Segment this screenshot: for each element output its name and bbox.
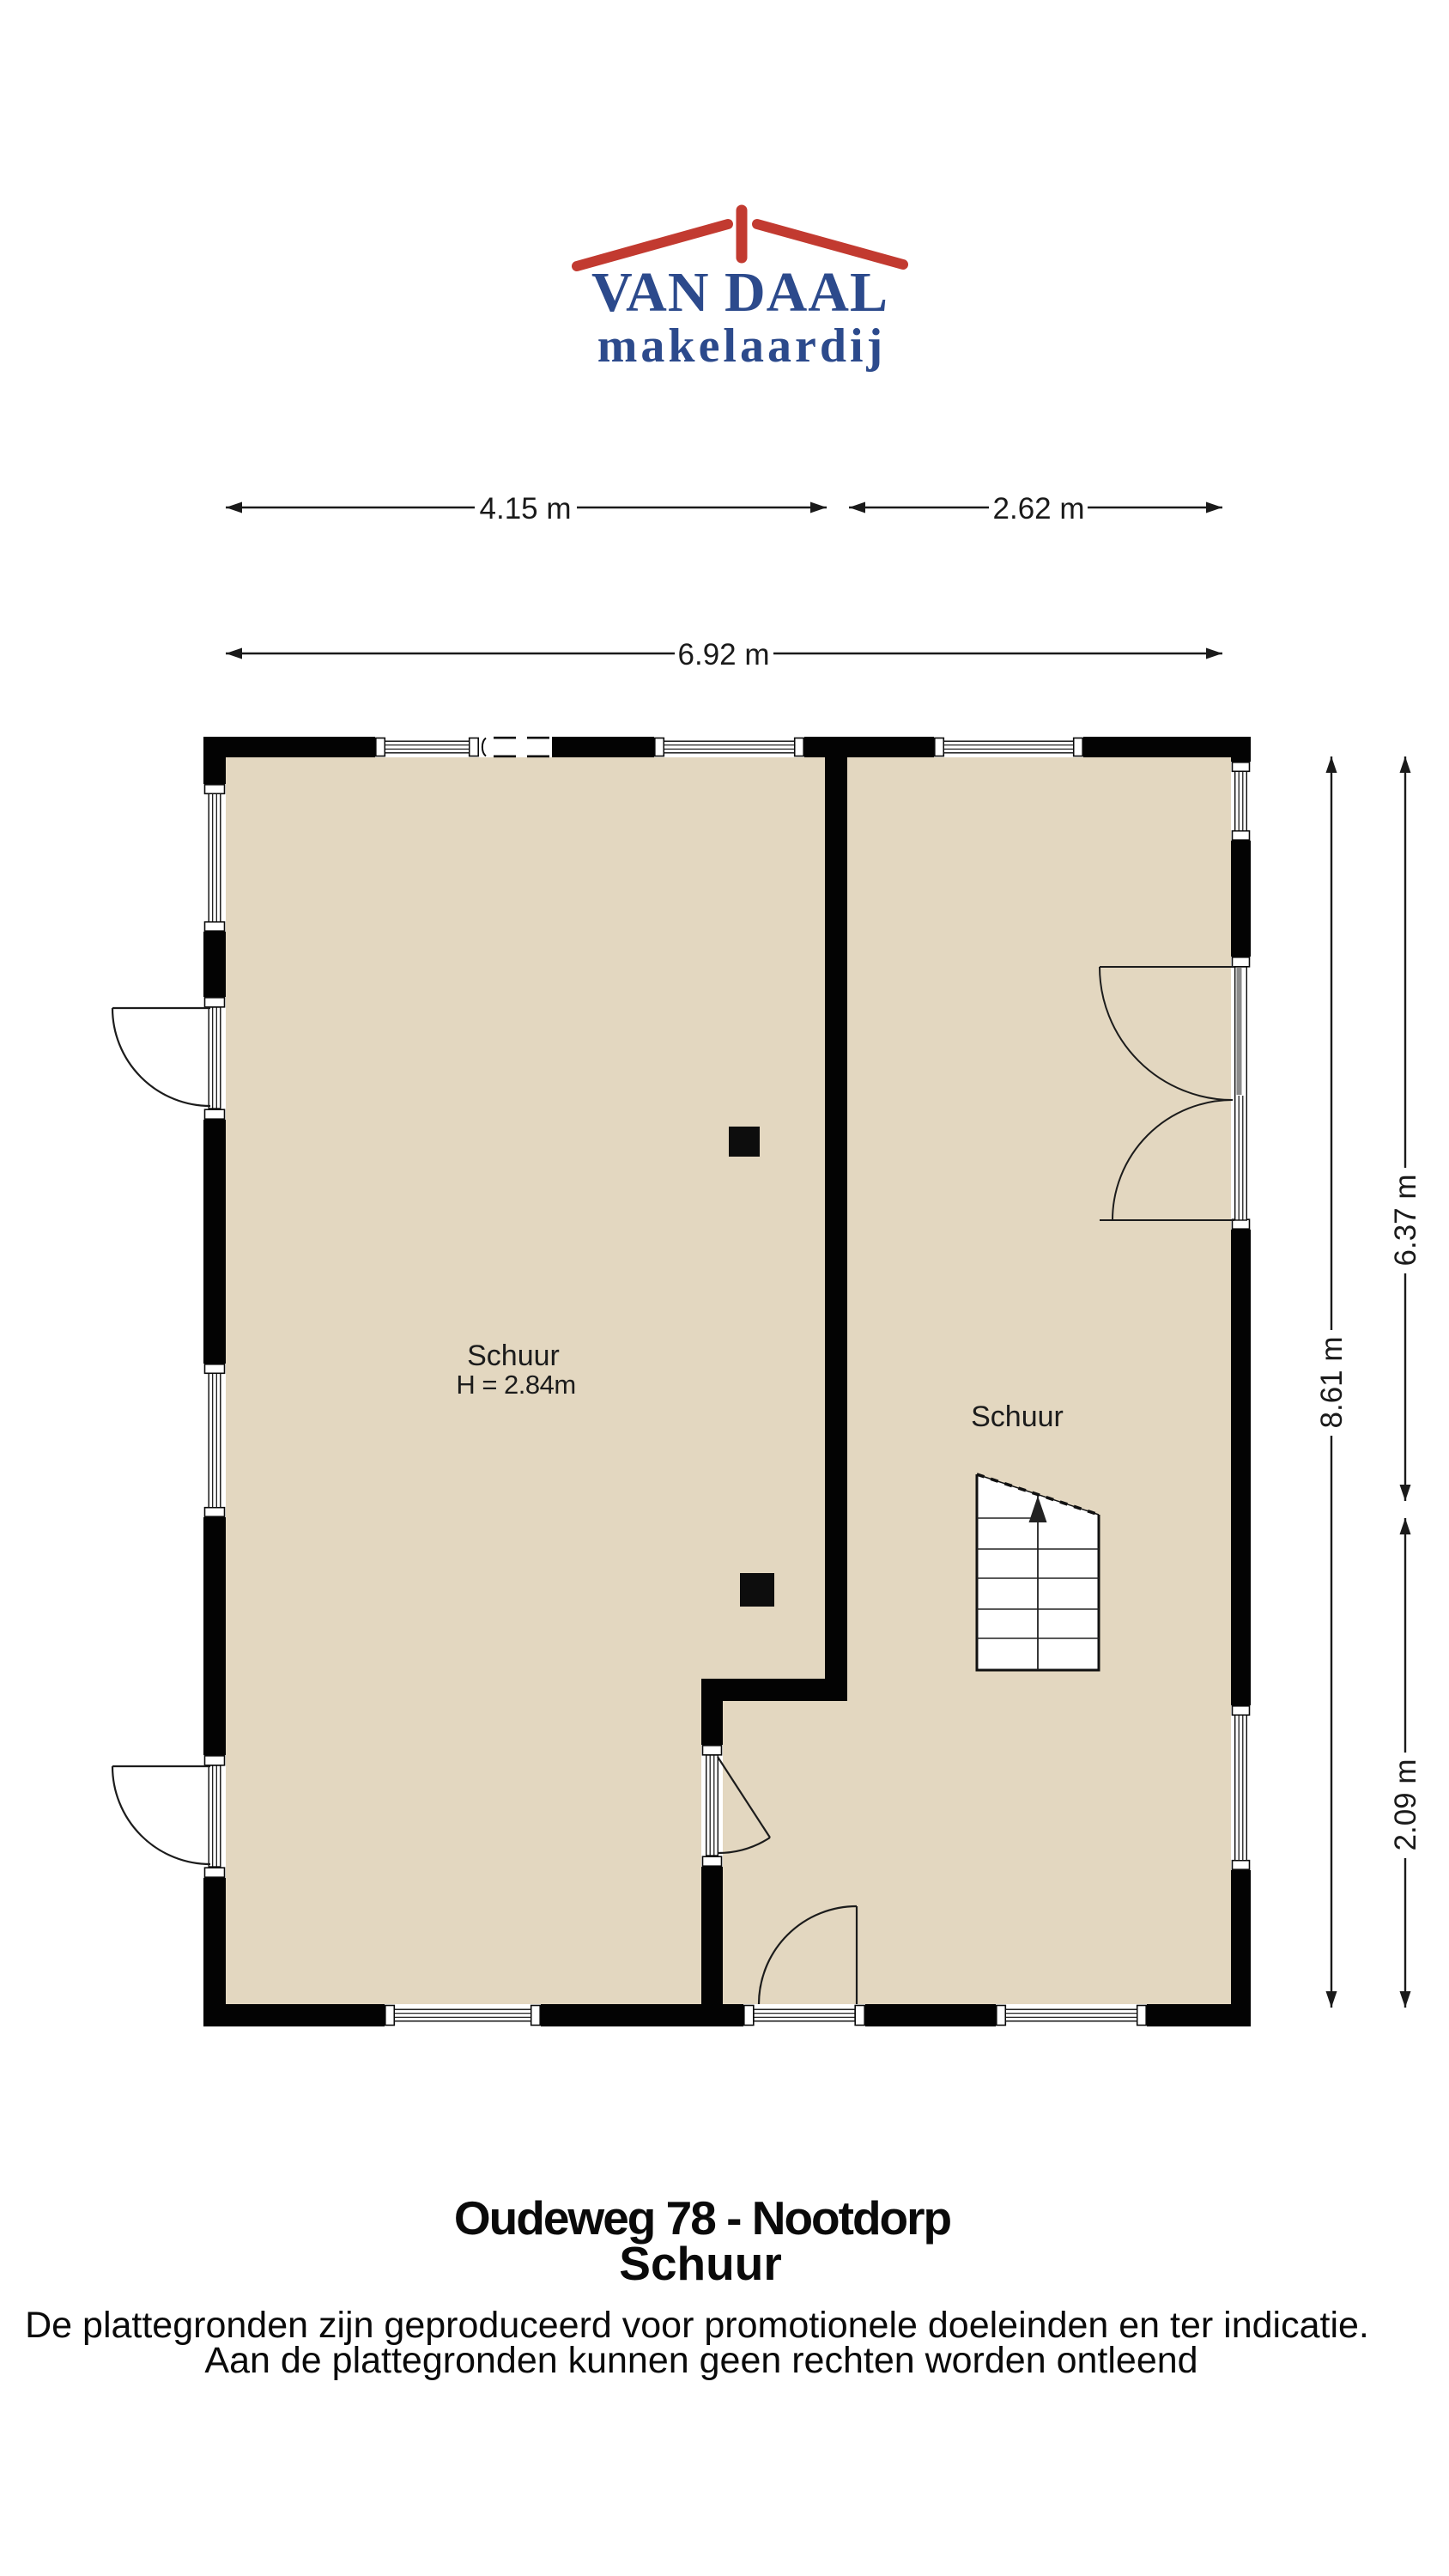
svg-text:Schuur: Schuur (971, 1400, 1064, 1433)
svg-text:6.92 m: 6.92 m (678, 638, 770, 671)
svg-text:Schuur: Schuur (467, 1340, 560, 1372)
svg-text:2.62 m: 2.62 m (993, 492, 1085, 526)
svg-text:Schuur: Schuur (619, 2237, 781, 2290)
svg-text:2.09 m: 2.09 m (1389, 1759, 1422, 1851)
svg-text:H = 2.84m: H = 2.84m (456, 1370, 575, 1400)
svg-text:6.37 m: 6.37 m (1389, 1175, 1422, 1267)
svg-text:VAN DAAL: VAN DAAL (591, 261, 888, 324)
svg-text:4.15 m: 4.15 m (480, 492, 572, 526)
svg-text:makelaardij: makelaardij (597, 319, 886, 373)
svg-text:Aan de plattegronden kunnen ge: Aan de plattegronden kunnen geen rechten… (204, 2340, 1197, 2381)
svg-text:8.61 m: 8.61 m (1315, 1337, 1349, 1429)
